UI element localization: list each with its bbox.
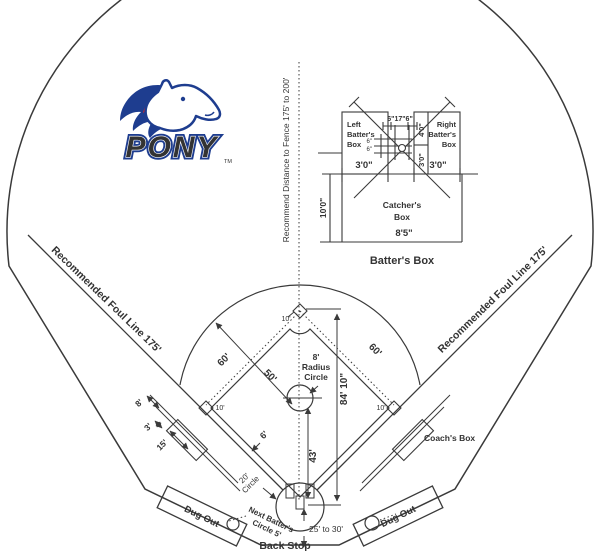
inset-right-width: 3'0" xyxy=(429,160,446,171)
first-radius-label: 10' xyxy=(376,405,385,412)
backstop-distance-label: 25' to 30' xyxy=(309,524,343,534)
third-radius-label: 10' xyxy=(215,405,224,412)
radius-circle-l1: 8' xyxy=(313,352,320,362)
field-outline xyxy=(7,0,593,545)
inset-caption: Batter's Box xyxy=(370,255,435,267)
coach-lane-lines xyxy=(150,395,450,491)
pony-wordmark: PONY xyxy=(125,131,219,164)
inset-front-depth: 4'0" xyxy=(417,123,426,137)
radius-circle-l3: Circle xyxy=(304,372,328,382)
next-batter-label: Next Batter's Circle 5' xyxy=(243,505,296,544)
inset-left-box-l1: Left xyxy=(347,120,361,129)
pitcher-circle xyxy=(283,385,322,411)
inset-back-depth: 3'0" xyxy=(417,153,426,167)
pitch-distance-label: 43' xyxy=(308,449,319,463)
inset-left-width: 3'0" xyxy=(355,160,372,171)
pony-field-diagram: Dug Out Dug Out Recommend Distance to Fe… xyxy=(0,0,600,556)
basepath-left-label: 60' xyxy=(216,352,233,369)
inset-catcher-l2: Box xyxy=(394,212,410,222)
second-radius-label: 10' xyxy=(281,316,290,323)
batters-box-inset: Left Batter's Box Right Batter's Box 6"1… xyxy=(318,97,478,267)
inset-gap-b: 6" xyxy=(367,147,372,153)
dugout-right: Dug Out xyxy=(353,486,443,546)
dugout-left: Dug Out xyxy=(157,486,247,546)
pony-logo: PONY PONY TM xyxy=(120,80,232,165)
home-circle-label: 20' Circle xyxy=(234,467,262,495)
dimension-lines xyxy=(147,309,341,547)
infield-diamond xyxy=(211,329,389,497)
foul-line-left-label: Recommended Foul Line 175' xyxy=(49,244,164,355)
coach-box-label: Coach's Box xyxy=(424,433,475,443)
pony-tm: TM xyxy=(224,159,232,165)
inset-left-box-l3: Box xyxy=(347,140,362,149)
inset-left-box-l2: Batter's xyxy=(347,130,375,139)
basepath-right-label: 60' xyxy=(366,342,383,359)
pony-horse-icon xyxy=(120,80,220,138)
fence-distance-label: Recommend Distance to Fence 175' to 200' xyxy=(281,77,291,242)
backstop-label: Back Stop xyxy=(259,540,310,552)
foul-line-right-label: Recommended Foul Line 175' xyxy=(436,244,551,355)
lane-3-label: 3' xyxy=(142,421,154,433)
inset-gap-a: 6" xyxy=(367,139,372,145)
inset-right-box-l1: Right xyxy=(437,120,457,129)
inset-catcher-width: 8'5" xyxy=(395,228,412,239)
inset-right-box-l2: Batter's xyxy=(428,130,456,139)
grass-radius-label: 50' xyxy=(261,368,278,385)
home-to-second-label: 84' 10" xyxy=(339,373,350,405)
base-lines-dotted xyxy=(206,311,394,405)
inset-right-box-l3: Box xyxy=(442,140,457,149)
dugout-right-label: Dug Out xyxy=(379,503,418,530)
lane-8-label: 8' xyxy=(133,397,145,409)
inset-catcher-depth: 10'0" xyxy=(318,198,328,218)
path-width-label: 6' xyxy=(258,429,270,441)
inset-catcher-l1: Catcher's xyxy=(383,200,422,210)
dugout-left-label: Dug Out xyxy=(182,504,221,531)
lane-15-label: 15' xyxy=(154,437,169,452)
coach-box-left xyxy=(166,419,207,460)
inset-top-dim: 6"17"6" xyxy=(387,116,413,123)
radius-circle-l2: Radius xyxy=(302,362,331,372)
infield-grass-arc xyxy=(180,285,420,385)
foul-lines xyxy=(28,235,572,490)
